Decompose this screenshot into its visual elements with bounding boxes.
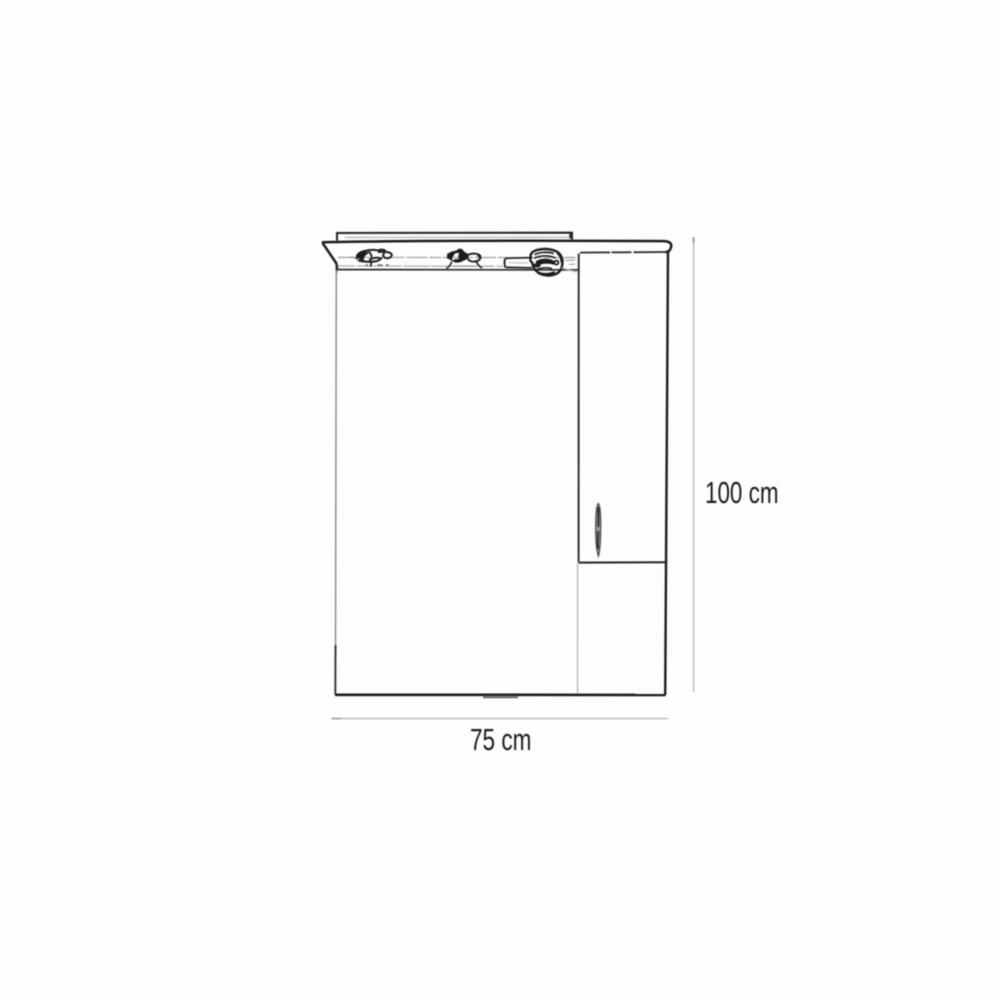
svg-text:100 cm: 100 cm — [705, 476, 779, 510]
svg-text:75 cm: 75 cm — [470, 723, 532, 757]
